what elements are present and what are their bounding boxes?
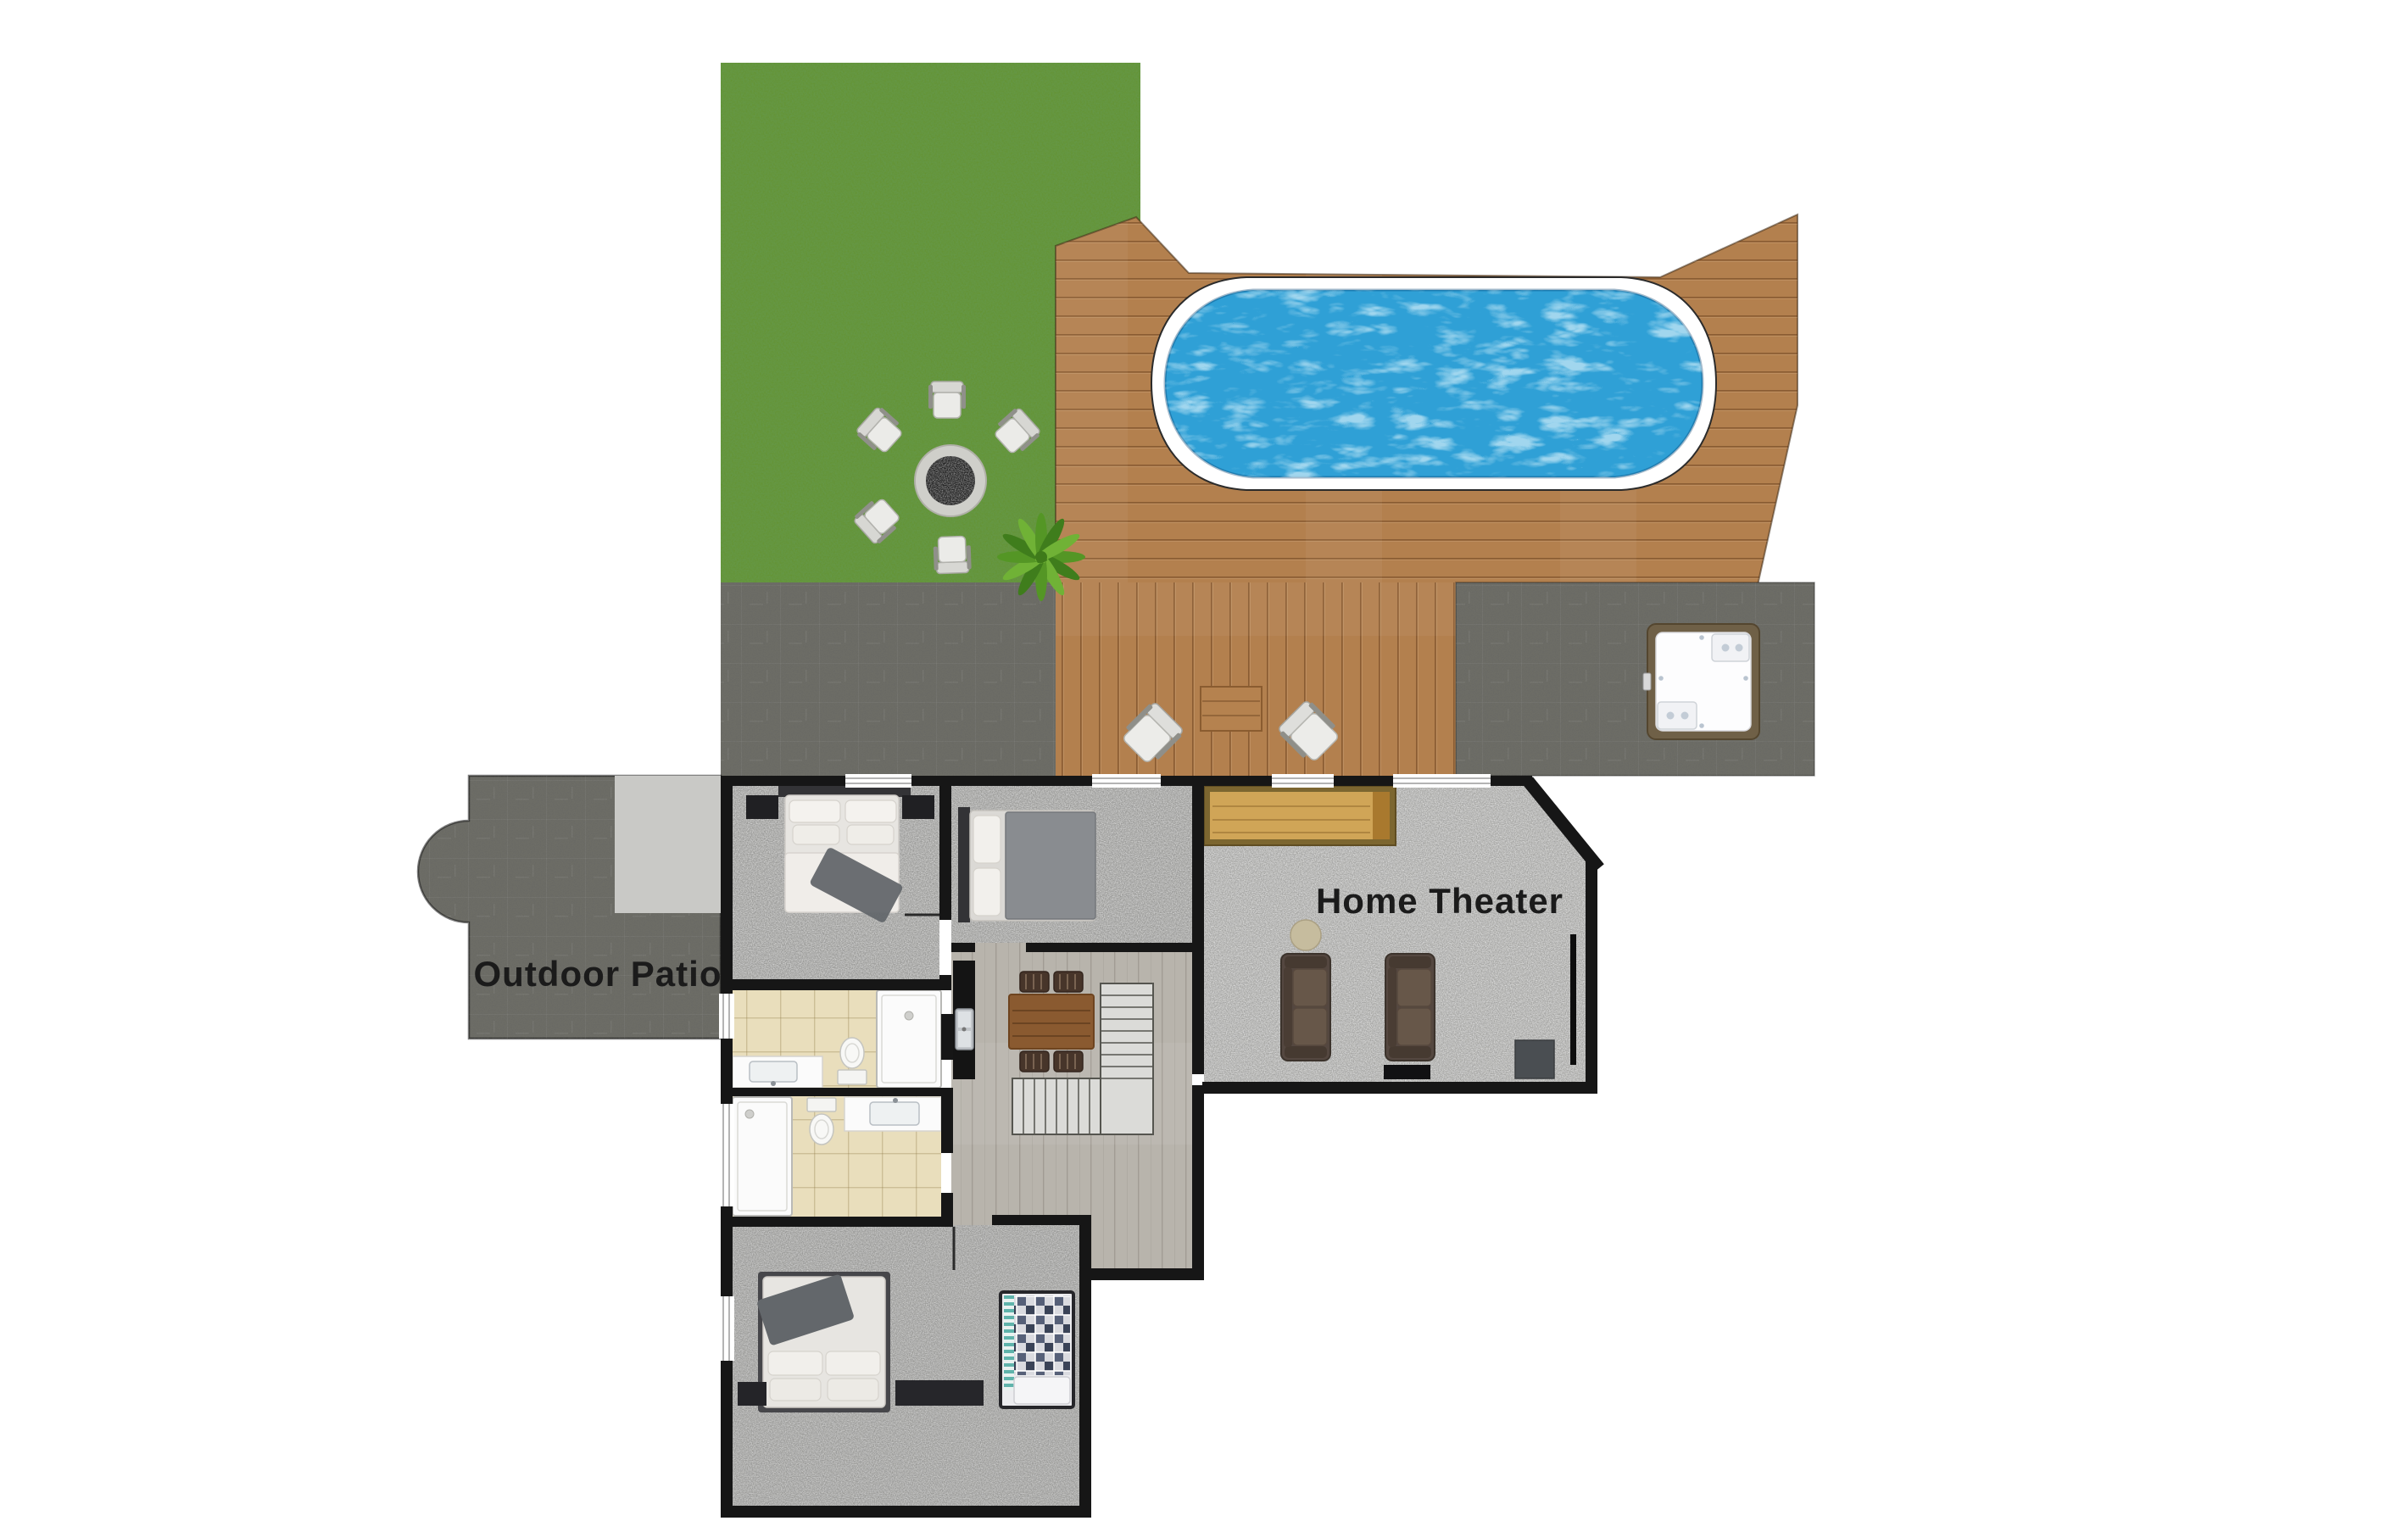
hot-tub [1643,624,1759,739]
wall-bedroom3-north-east [992,1215,1085,1225]
pillow [973,816,1001,863]
outdoor-patio-label: Outdoor Patio [474,954,722,994]
media-console [1204,786,1396,845]
fire-pit-chair [928,382,966,418]
bed-duvet [1006,812,1095,919]
wall-hall-south [1090,1268,1204,1280]
bed-headboard [958,807,970,922]
wall-bath2-east [941,1088,953,1153]
window [719,1104,734,1206]
stair-upper-flight [1101,983,1153,1134]
wall-bedroom1-south [733,979,939,990]
soundbar [1384,1065,1430,1079]
kitchen-dining [953,961,1094,1079]
wall-bath-divider [727,1088,941,1096]
nightstand [746,795,778,819]
wall-bedroom1-east [939,786,951,920]
window [719,994,734,1039]
patio-right [1456,582,1814,776]
pillow [847,825,894,844]
wall-hall-east-lower [1192,1085,1204,1280]
bunk-bed [1001,1292,1073,1407]
pool-water-texture [1165,290,1703,477]
window [1393,774,1491,788]
hot-tub-control [1643,673,1651,690]
faucet [962,1028,967,1032]
toilet [838,1038,867,1084]
window [1272,774,1334,788]
shower [877,990,941,1088]
deck-side-table [1201,687,1262,731]
pillow [789,800,840,822]
dining-chair [1054,972,1083,992]
nightstand [738,1382,766,1406]
patio-step [615,776,721,913]
toilet [807,1098,836,1145]
window [845,774,911,788]
outdoor-patio [418,776,721,1039]
pillow [973,868,1001,916]
home-theater-label: Home Theater [1316,881,1564,921]
pillow [1014,1377,1070,1404]
wall-bedroom2-south-west [951,943,975,952]
dining-chair [1020,1051,1049,1072]
nightstand [902,795,934,819]
wall-hall-east-upper [1192,786,1204,1074]
pillow [770,1379,821,1401]
shower-drain [745,1110,754,1118]
plaid-quilt [1014,1295,1070,1375]
dining-table [1009,994,1094,1049]
theater-sofa [1281,954,1330,1061]
shower-drain [905,1011,913,1020]
hot-tub-seat [1712,634,1749,661]
theater-sofa [1385,954,1435,1061]
pillow [828,1379,878,1401]
dining-chair [1054,1051,1083,1072]
wall-bedroom2-south-east [1026,943,1192,952]
pillow [845,800,896,822]
pillow [826,1351,880,1375]
dresser [895,1380,984,1406]
sink-basin [870,1102,919,1125]
wall-bedroom1-east-stub [939,975,951,990]
window [1092,774,1161,788]
media-cabinet [1515,1040,1554,1078]
rolled-blanket [1004,1295,1014,1390]
wall-east-bedroom3 [1079,1215,1091,1518]
fire-pit-chair [933,536,971,574]
wall-east-theater [1586,861,1597,1094]
faucet [893,1098,898,1103]
pillow [793,825,839,844]
wall-bath1-east [941,1014,953,1060]
floor-plan: Outdoor Patio Home Theater [0,0,2408,1532]
round-side-table [1290,920,1321,950]
sink-basin [750,1061,797,1082]
faucet [771,1081,776,1086]
patio-left [721,582,1056,776]
window [719,1296,734,1361]
dining-chair [1020,972,1049,992]
deck-terrace [1056,582,1456,776]
shower [733,1097,792,1216]
deck-plank-texture-vertical [1056,582,1456,776]
wall-tv [1570,934,1576,1065]
wall-south-theater [1202,1082,1597,1094]
bedroom-2-furniture [958,807,1095,922]
swimming-pool [1151,277,1716,490]
hot-tub-seat [1658,702,1697,729]
pillow [768,1351,822,1375]
wall-south [721,1506,1091,1518]
wall-bedroom3-north-west [721,1217,952,1227]
